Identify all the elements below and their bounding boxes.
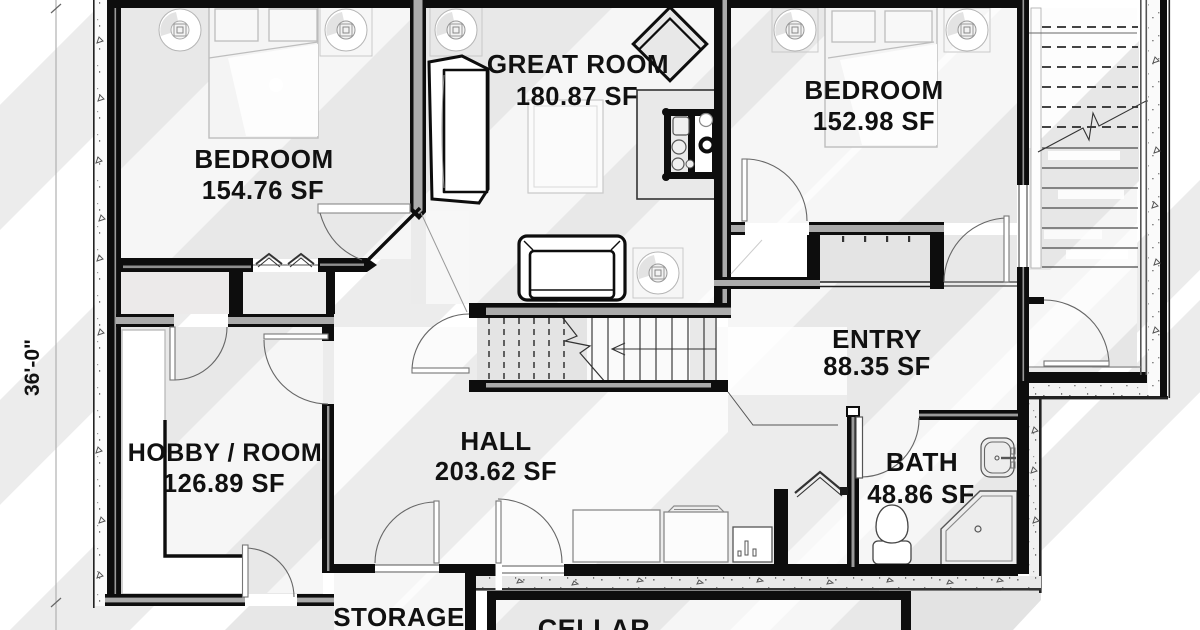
svg-text:BEDROOM: BEDROOM: [804, 75, 943, 105]
svg-text:GREAT ROOM: GREAT ROOM: [487, 49, 669, 79]
svg-text:HALL: HALL: [460, 426, 531, 456]
svg-text:HOBBY / ROOM: HOBBY / ROOM: [128, 439, 322, 467]
svg-text:ENTRY: ENTRY: [832, 324, 922, 354]
svg-text:BEDROOM: BEDROOM: [194, 144, 333, 174]
svg-text:180.87 SF: 180.87 SF: [516, 83, 638, 111]
svg-text:36'-0": 36'-0": [21, 339, 44, 396]
svg-text:152.98 SF: 152.98 SF: [813, 108, 935, 136]
svg-text:CELLAR: CELLAR: [538, 614, 651, 630]
svg-text:88.35 SF: 88.35 SF: [823, 353, 930, 381]
svg-text:203.62 SF: 203.62 SF: [435, 458, 557, 486]
svg-text:154.76 SF: 154.76 SF: [202, 177, 324, 205]
svg-text:48.86 SF: 48.86 SF: [867, 481, 974, 509]
svg-text:126.89 SF: 126.89 SF: [163, 470, 285, 498]
svg-text:STORAGE: STORAGE: [333, 602, 465, 630]
svg-text:BATH: BATH: [886, 447, 958, 477]
